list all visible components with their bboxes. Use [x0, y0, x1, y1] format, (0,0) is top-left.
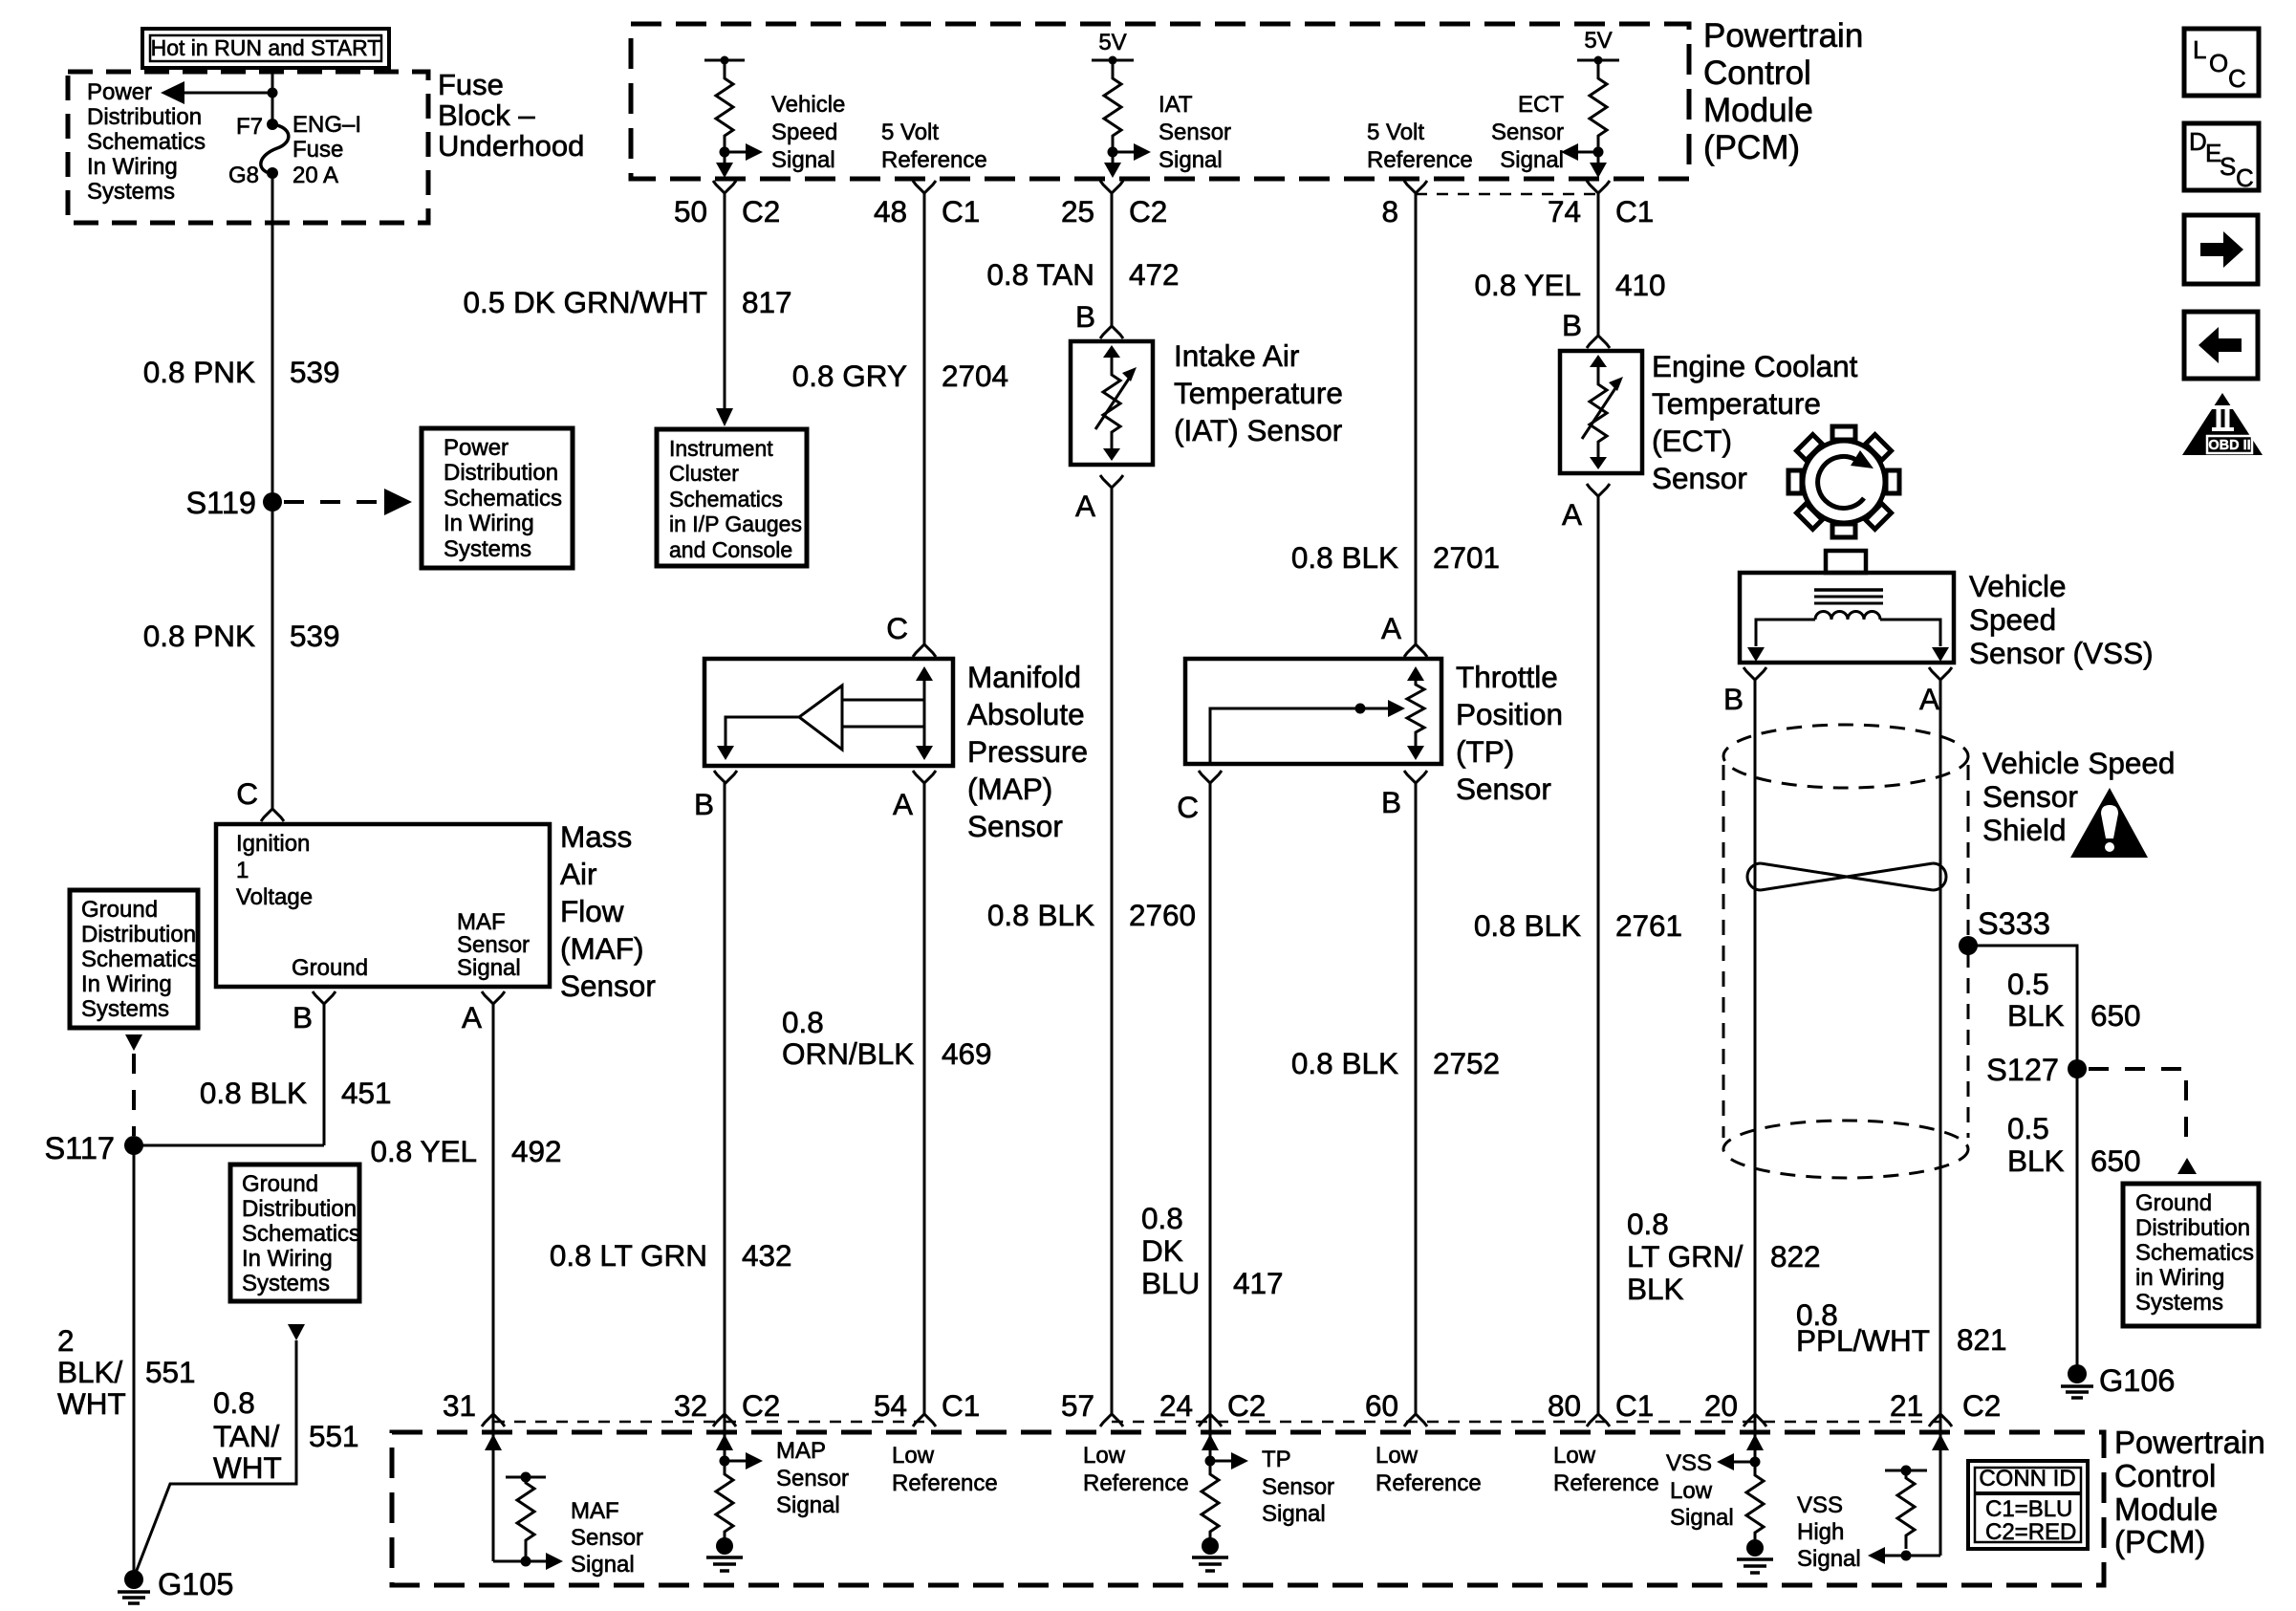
svg-text:21: 21 — [1890, 1388, 1923, 1423]
svg-text:20 A: 20 A — [292, 163, 338, 188]
svg-text:Signal: Signal — [1159, 147, 1223, 173]
svg-text:OBD II: OBD II — [2208, 438, 2250, 453]
svg-text:2761: 2761 — [1615, 908, 1682, 943]
svg-text:0.8 BLK: 0.8 BLK — [200, 1076, 307, 1110]
svg-text:Schematics: Schematics — [444, 486, 562, 512]
svg-text:Schematics: Schematics — [242, 1221, 360, 1247]
svg-text:Sensor: Sensor — [571, 1525, 643, 1551]
svg-text:Schematics: Schematics — [2135, 1240, 2254, 1266]
svg-text:2704: 2704 — [942, 359, 1008, 393]
svg-text:80: 80 — [1548, 1388, 1581, 1423]
svg-text:539: 539 — [290, 355, 340, 389]
svg-text:Instrument: Instrument — [669, 436, 773, 461]
svg-text:IAT: IAT — [1159, 92, 1193, 118]
svg-text:C2: C2 — [1227, 1388, 1266, 1423]
svg-text:Schematics: Schematics — [87, 129, 206, 155]
svg-text:Reference: Reference — [1375, 1470, 1482, 1496]
svg-text:C2: C2 — [1129, 194, 1167, 229]
svg-text:Speed: Speed — [771, 120, 837, 145]
svg-text:(IAT) Sensor: (IAT) Sensor — [1174, 413, 1342, 447]
svg-text:472: 472 — [1129, 257, 1180, 292]
svg-text:0.8 TAN: 0.8 TAN — [986, 257, 1094, 292]
svg-text:57: 57 — [1061, 1388, 1094, 1423]
svg-text:Sensor: Sensor — [1652, 461, 1747, 495]
svg-text:C2: C2 — [742, 194, 780, 229]
svg-text:CONN ID: CONN ID — [1979, 1466, 2075, 1491]
svg-text:650: 650 — [2090, 1143, 2141, 1178]
svg-text:Mass: Mass — [560, 819, 632, 854]
svg-text:C: C — [886, 611, 908, 645]
svg-text:Low: Low — [892, 1443, 935, 1469]
svg-text:ECT: ECT — [1518, 92, 1564, 118]
svg-text:Signal: Signal — [1670, 1505, 1734, 1531]
svg-text:A: A — [1381, 611, 1401, 645]
svg-text:A: A — [1075, 489, 1095, 523]
svg-text:B: B — [1562, 308, 1582, 342]
svg-text:A: A — [462, 1000, 482, 1034]
svg-text:Systems: Systems — [87, 179, 175, 205]
svg-text:Powertrain: Powertrain — [2114, 1425, 2265, 1460]
svg-text:B: B — [292, 1000, 313, 1034]
svg-text:0.5: 0.5 — [2007, 1111, 2049, 1145]
svg-text:Distribution: Distribution — [444, 460, 558, 486]
svg-text:(PCM): (PCM) — [1703, 129, 1800, 166]
svg-text:(MAP): (MAP) — [967, 772, 1052, 806]
svg-text:and Console: and Console — [669, 537, 792, 562]
svg-text:S117: S117 — [45, 1131, 116, 1165]
svg-text:Fuse: Fuse — [438, 68, 504, 101]
svg-text:LT GRN/: LT GRN/ — [1627, 1239, 1744, 1274]
svg-text:Distribution: Distribution — [87, 104, 202, 130]
svg-text:G8: G8 — [228, 163, 259, 188]
svg-text:Vehicle: Vehicle — [1969, 569, 2067, 603]
svg-text:Distribution: Distribution — [81, 922, 196, 947]
svg-text:Vehicle Speed: Vehicle Speed — [1982, 746, 2175, 780]
svg-text:A: A — [1562, 497, 1582, 532]
svg-text:Sensor: Sensor — [1491, 120, 1564, 145]
svg-text:MAF: MAF — [457, 909, 506, 935]
svg-text:50: 50 — [674, 194, 707, 229]
svg-text:ENG–I: ENG–I — [292, 112, 361, 138]
svg-text:Sensor: Sensor — [1262, 1474, 1334, 1500]
svg-text:Sensor: Sensor — [1456, 772, 1551, 806]
svg-text:Manifold: Manifold — [967, 660, 1081, 694]
svg-text:0.8: 0.8 — [1627, 1207, 1669, 1241]
svg-text:60: 60 — [1365, 1388, 1398, 1423]
svg-text:Low: Low — [1083, 1443, 1126, 1469]
svg-text:High: High — [1797, 1519, 1844, 1545]
svg-text:in I/P Gauges: in I/P Gauges — [669, 512, 802, 536]
svg-text:492: 492 — [511, 1134, 562, 1168]
svg-text:821: 821 — [1957, 1322, 2007, 1357]
svg-text:650: 650 — [2090, 998, 2141, 1033]
svg-text:0.8 BLK: 0.8 BLK — [1291, 540, 1398, 575]
svg-text:Distribution: Distribution — [242, 1196, 357, 1222]
svg-text:Speed: Speed — [1969, 602, 2056, 637]
svg-text:Powertrain: Powertrain — [1703, 17, 1863, 54]
svg-text:2701: 2701 — [1433, 540, 1500, 575]
svg-text:Block –: Block – — [438, 98, 535, 132]
svg-text:Sensor: Sensor — [1982, 779, 2078, 814]
svg-text:Ground: Ground — [2135, 1190, 2212, 1216]
svg-text:BLK: BLK — [2007, 1143, 2065, 1178]
svg-text:551: 551 — [145, 1355, 196, 1389]
svg-text:Signal: Signal — [776, 1492, 840, 1518]
svg-text:410: 410 — [1615, 268, 1666, 302]
svg-text:0.8: 0.8 — [1141, 1201, 1183, 1235]
svg-text:Low: Low — [1553, 1443, 1596, 1469]
svg-text:0.5 DK GRN/WHT: 0.5 DK GRN/WHT — [463, 285, 707, 319]
svg-text:8: 8 — [1381, 194, 1398, 229]
svg-text:Ground: Ground — [292, 955, 368, 981]
svg-text:(TP): (TP) — [1456, 734, 1514, 769]
svg-text:C: C — [1177, 790, 1199, 824]
svg-text:Engine Coolant: Engine Coolant — [1652, 349, 1858, 383]
svg-text:Intake Air: Intake Air — [1174, 338, 1299, 373]
svg-text:Ignition: Ignition — [236, 831, 310, 857]
svg-text:Underhood: Underhood — [438, 129, 584, 163]
svg-text:MAF: MAF — [571, 1498, 619, 1524]
svg-text:Pressure: Pressure — [967, 734, 1088, 769]
svg-text:5V: 5V — [1584, 28, 1612, 54]
svg-text:Distribution: Distribution — [2135, 1215, 2250, 1241]
svg-text:417: 417 — [1233, 1266, 1284, 1300]
svg-text:S333: S333 — [1978, 906, 2050, 941]
svg-text:54: 54 — [874, 1388, 907, 1423]
svg-text:0.8 YEL: 0.8 YEL — [1474, 268, 1581, 302]
svg-text:B: B — [694, 787, 714, 821]
svg-text:BLU: BLU — [1141, 1266, 1200, 1300]
svg-text:Power: Power — [87, 79, 152, 105]
svg-text:DK: DK — [1141, 1233, 1183, 1268]
svg-text:A: A — [1919, 682, 1939, 716]
svg-text:L: L — [2193, 35, 2206, 64]
svg-text:Flow: Flow — [560, 894, 624, 928]
svg-text:(MAF): (MAF) — [560, 931, 643, 966]
svg-text:D: D — [2189, 127, 2207, 156]
svg-text:0.8 LT GRN: 0.8 LT GRN — [550, 1238, 707, 1273]
svg-text:Sensor: Sensor — [776, 1466, 849, 1491]
svg-text:0.8 BLK: 0.8 BLK — [987, 898, 1094, 932]
svg-text:74: 74 — [1548, 194, 1581, 229]
svg-text:Reference: Reference — [892, 1470, 998, 1496]
svg-text:C: C — [236, 776, 258, 811]
svg-text:432: 432 — [742, 1238, 792, 1273]
svg-text:A: A — [893, 787, 913, 821]
svg-text:C: C — [2236, 163, 2254, 192]
svg-text:0.8: 0.8 — [213, 1385, 255, 1420]
svg-text:Sensor: Sensor — [457, 932, 530, 958]
svg-text:(PCM): (PCM) — [2114, 1524, 2205, 1559]
svg-text:C: C — [2228, 64, 2246, 93]
svg-text:0.8 BLK: 0.8 BLK — [1291, 1046, 1398, 1080]
svg-text:Systems: Systems — [81, 996, 169, 1022]
svg-text:S119: S119 — [186, 486, 257, 520]
svg-text:In Wiring: In Wiring — [444, 511, 534, 536]
svg-text:C2: C2 — [1962, 1388, 2001, 1423]
svg-text:5 Volt: 5 Volt — [1367, 120, 1424, 145]
svg-text:Low: Low — [1375, 1443, 1419, 1469]
svg-text:Signal: Signal — [1262, 1501, 1326, 1527]
svg-text:1: 1 — [236, 858, 249, 883]
svg-text:2752: 2752 — [1433, 1046, 1500, 1080]
svg-text:Shield: Shield — [1982, 813, 2067, 847]
svg-text:TAN/: TAN/ — [213, 1419, 280, 1453]
svg-text:5 Volt: 5 Volt — [881, 120, 939, 145]
svg-text:Signal: Signal — [571, 1552, 635, 1578]
svg-text:Air: Air — [560, 857, 597, 891]
svg-text:2: 2 — [57, 1323, 75, 1358]
svg-text:817: 817 — [742, 285, 792, 319]
svg-text:ORN/BLK: ORN/BLK — [782, 1036, 914, 1071]
svg-text:0.8 BLK: 0.8 BLK — [1474, 908, 1581, 943]
svg-text:Temperature: Temperature — [1652, 386, 1821, 421]
svg-text:WHT: WHT — [57, 1386, 126, 1421]
svg-text:VSS: VSS — [1666, 1450, 1712, 1476]
svg-text:469: 469 — [942, 1036, 992, 1071]
svg-text:B: B — [1381, 785, 1401, 819]
svg-text:S: S — [2220, 152, 2236, 181]
svg-text:Reference: Reference — [1367, 147, 1473, 173]
svg-text:B: B — [1723, 682, 1744, 716]
svg-text:Sensor (VSS): Sensor (VSS) — [1969, 636, 2154, 670]
svg-text:0.8 YEL: 0.8 YEL — [370, 1134, 477, 1168]
svg-text:Position: Position — [1456, 697, 1563, 731]
svg-text:G105: G105 — [158, 1567, 234, 1601]
svg-text:F7: F7 — [236, 114, 263, 140]
svg-text:Schematics: Schematics — [81, 947, 200, 972]
svg-text:Signal: Signal — [771, 147, 835, 173]
svg-text:Schematics: Schematics — [669, 487, 783, 512]
svg-text:Throttle: Throttle — [1456, 660, 1558, 694]
svg-text:5V: 5V — [1098, 30, 1126, 55]
svg-text:Signal: Signal — [457, 955, 521, 981]
svg-text:Fuse: Fuse — [292, 137, 343, 163]
svg-text:Low: Low — [1670, 1478, 1713, 1504]
svg-text:Systems: Systems — [444, 536, 531, 562]
svg-text:24: 24 — [1159, 1388, 1193, 1423]
svg-text:451: 451 — [341, 1076, 392, 1110]
svg-text:Control: Control — [2114, 1458, 2216, 1493]
svg-text:2760: 2760 — [1129, 898, 1196, 932]
svg-text:Power: Power — [444, 435, 509, 461]
svg-text:G106: G106 — [2099, 1363, 2176, 1398]
svg-text:551: 551 — [309, 1419, 359, 1453]
svg-text:Reference: Reference — [1083, 1470, 1189, 1496]
svg-text:Module: Module — [2114, 1491, 2218, 1527]
svg-text:Absolute: Absolute — [967, 697, 1085, 731]
svg-text:Module: Module — [1703, 92, 1813, 129]
svg-text:539: 539 — [290, 619, 340, 653]
svg-text:Signal: Signal — [1500, 147, 1564, 173]
svg-text:C2=RED: C2=RED — [1985, 1519, 2076, 1545]
svg-text:25: 25 — [1061, 194, 1094, 229]
svg-text:PPL/WHT: PPL/WHT — [1796, 1323, 1930, 1358]
svg-text:Ground: Ground — [242, 1171, 318, 1197]
svg-text:Cluster: Cluster — [669, 461, 739, 486]
svg-text:C1: C1 — [1615, 194, 1654, 229]
svg-text:Systems: Systems — [242, 1271, 330, 1296]
svg-text:C1: C1 — [1615, 1388, 1654, 1423]
svg-text:TP: TP — [1262, 1447, 1291, 1472]
svg-text:Signal: Signal — [1797, 1546, 1861, 1572]
svg-text:Voltage: Voltage — [236, 884, 313, 910]
svg-text:48: 48 — [874, 194, 907, 229]
svg-text:In Wiring: In Wiring — [81, 971, 172, 997]
svg-text:Control: Control — [1703, 54, 1811, 92]
svg-text:Reference: Reference — [1553, 1470, 1659, 1496]
svg-text:0.8: 0.8 — [782, 1005, 824, 1039]
svg-text:Vehicle: Vehicle — [771, 92, 845, 118]
svg-text:C1: C1 — [942, 1388, 980, 1423]
svg-text:BLK/: BLK/ — [57, 1355, 123, 1389]
svg-text:Sensor: Sensor — [560, 969, 656, 1003]
svg-text:20: 20 — [1704, 1388, 1738, 1423]
svg-text:0.5: 0.5 — [2007, 967, 2049, 1001]
svg-text:Systems: Systems — [2135, 1290, 2223, 1316]
svg-text:0.8 GRY: 0.8 GRY — [792, 359, 907, 393]
svg-text:0.8 PNK: 0.8 PNK — [143, 355, 255, 389]
svg-text:32: 32 — [674, 1388, 707, 1423]
svg-text:Sensor: Sensor — [967, 809, 1063, 843]
svg-text:Ground: Ground — [81, 897, 158, 923]
svg-text:In Wiring: In Wiring — [87, 154, 178, 180]
svg-text:C1: C1 — [942, 194, 980, 229]
svg-text:In Wiring: In Wiring — [242, 1246, 333, 1272]
svg-text:B: B — [1075, 299, 1095, 334]
svg-text:31: 31 — [443, 1388, 476, 1423]
svg-text:O: O — [2209, 49, 2228, 77]
svg-text:(ECT): (ECT) — [1652, 424, 1732, 458]
svg-text:Hot in RUN and START: Hot in RUN and START — [151, 35, 381, 60]
svg-text:BLK: BLK — [2007, 998, 2065, 1033]
svg-text:VSS: VSS — [1797, 1492, 1843, 1518]
svg-text:BLK: BLK — [1627, 1272, 1684, 1306]
svg-text:Sensor: Sensor — [1159, 120, 1231, 145]
svg-text:MAP: MAP — [776, 1438, 826, 1464]
svg-text:0.8 PNK: 0.8 PNK — [143, 619, 255, 653]
svg-text:Temperature: Temperature — [1174, 376, 1343, 410]
svg-text:822: 822 — [1770, 1239, 1821, 1274]
svg-text:C2: C2 — [742, 1388, 780, 1423]
svg-text:S127: S127 — [1986, 1053, 2059, 1087]
svg-text:Reference: Reference — [881, 147, 987, 173]
svg-text:WHT: WHT — [213, 1450, 282, 1485]
svg-text:in Wiring: in Wiring — [2135, 1265, 2224, 1291]
svg-text:C1=BLU: C1=BLU — [1985, 1496, 2072, 1522]
